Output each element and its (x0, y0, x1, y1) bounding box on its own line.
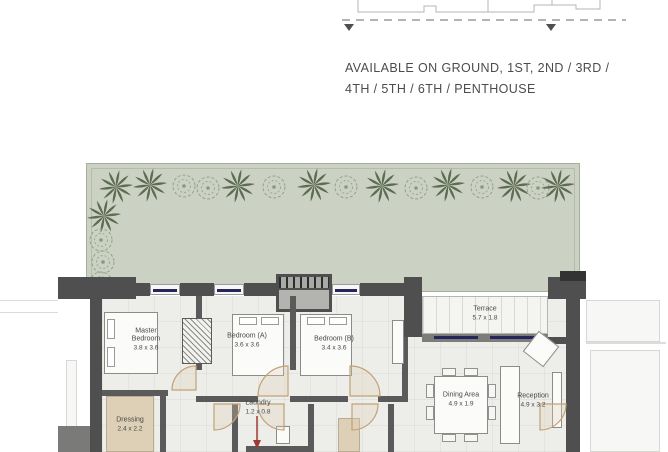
wall-segment (246, 446, 310, 452)
wall-segment (160, 396, 166, 452)
bush-icon (471, 176, 493, 198)
console-table (552, 372, 562, 428)
sliding-door (422, 334, 548, 342)
palm-tree-icon (431, 168, 465, 202)
window (332, 284, 360, 295)
garden-trees (86, 160, 580, 292)
pillow (261, 317, 279, 325)
room-label-master-bedroom: Master Bedroom 3.8 x 3.6 (124, 328, 168, 353)
room-label-reception: Reception 4.9 x 3.2 (517, 393, 549, 410)
pillow (329, 317, 347, 325)
bush-icon (335, 176, 357, 198)
room-label-terrace: Terrace 5.7 x 1.8 (473, 306, 498, 323)
floor-plan-page: AVAILABLE ON GROUND, 1ST, 2ND / 3RD / 4T… (0, 0, 668, 452)
chair (488, 384, 496, 398)
palm-tree-icon (133, 168, 167, 202)
pillow (107, 347, 115, 367)
wall-segment (136, 283, 150, 296)
stair-block (58, 426, 94, 452)
bush-icon (173, 175, 195, 197)
wall-segment (378, 396, 408, 402)
window-pane (217, 289, 241, 292)
chair (464, 368, 478, 376)
toilet (276, 426, 290, 444)
chair (442, 434, 456, 442)
wall-segment (308, 404, 314, 452)
palm-tree-icon (497, 169, 531, 203)
room-label-bedroom-b: Bedroom (B) 3.4 x 3.6 (314, 336, 354, 353)
stoop-steps (279, 277, 329, 290)
wall-segment (360, 283, 406, 296)
door-leaf (338, 418, 360, 452)
availability-line-1: AVAILABLE ON GROUND, 1ST, 2ND / 3RD / (345, 58, 635, 79)
window (150, 284, 180, 295)
bush-icon (90, 229, 112, 251)
pillow (239, 317, 257, 325)
bush-icon (405, 177, 427, 199)
wall-segment (404, 277, 422, 337)
closet (392, 320, 404, 364)
wall-segment (232, 404, 238, 452)
availability-line-2: 4TH / 5TH / 6TH / PENTHOUSE (345, 79, 635, 100)
chair (426, 406, 434, 420)
chair (488, 406, 496, 420)
neighbor-line (0, 300, 58, 301)
wall-segment (290, 396, 348, 402)
window-pane (490, 336, 534, 339)
pillow (307, 317, 325, 325)
elevation-marker-icon (344, 24, 354, 31)
wall-segment (560, 271, 586, 281)
palm-tree-icon (297, 168, 331, 202)
room-label-laundry: Laundry 1.2 x 0.8 (245, 400, 270, 417)
room-label-bedroom-a: Bedroom (A) 3.6 x 3.6 (227, 333, 267, 350)
availability-caption: AVAILABLE ON GROUND, 1ST, 2ND / 3RD / 4T… (345, 58, 635, 100)
wall-segment (90, 296, 102, 452)
elevation-outline (358, 0, 600, 12)
window-pane (434, 336, 478, 339)
wardrobe (182, 318, 212, 364)
wall-segment (180, 283, 214, 296)
palm-tree-icon (541, 169, 575, 203)
palm-tree-icon (221, 169, 255, 203)
elevation-marker-icon (546, 24, 556, 31)
room-label-dressing: Dressing 2.4 x 2.2 (116, 417, 144, 434)
wall-segment (388, 404, 394, 452)
wall-segment (244, 283, 276, 296)
entry-stoop (276, 274, 332, 312)
bush-icon (92, 251, 114, 273)
chair (464, 434, 478, 442)
window-pane (335, 289, 357, 292)
neighbor-outline (586, 300, 660, 342)
wall-segment (290, 296, 296, 370)
bush-icon (197, 177, 219, 199)
chair (442, 368, 456, 376)
neighbor-outline (66, 360, 77, 432)
room-label-dining-area: Dining Area 4.9 x 1.9 (443, 392, 479, 409)
window (214, 284, 244, 295)
pillow (107, 319, 115, 339)
palm-tree-icon (87, 199, 121, 233)
building-elevation-sketch (338, 0, 638, 34)
neighbor-outline (590, 350, 660, 452)
palm-tree-icon (99, 170, 133, 204)
wall-segment (566, 296, 580, 452)
chair (426, 384, 434, 398)
neighbor-line (0, 312, 58, 313)
bush-icon (263, 176, 285, 198)
window-pane (153, 289, 177, 292)
palm-tree-icon (365, 169, 399, 203)
neighbor-line (586, 342, 666, 344)
